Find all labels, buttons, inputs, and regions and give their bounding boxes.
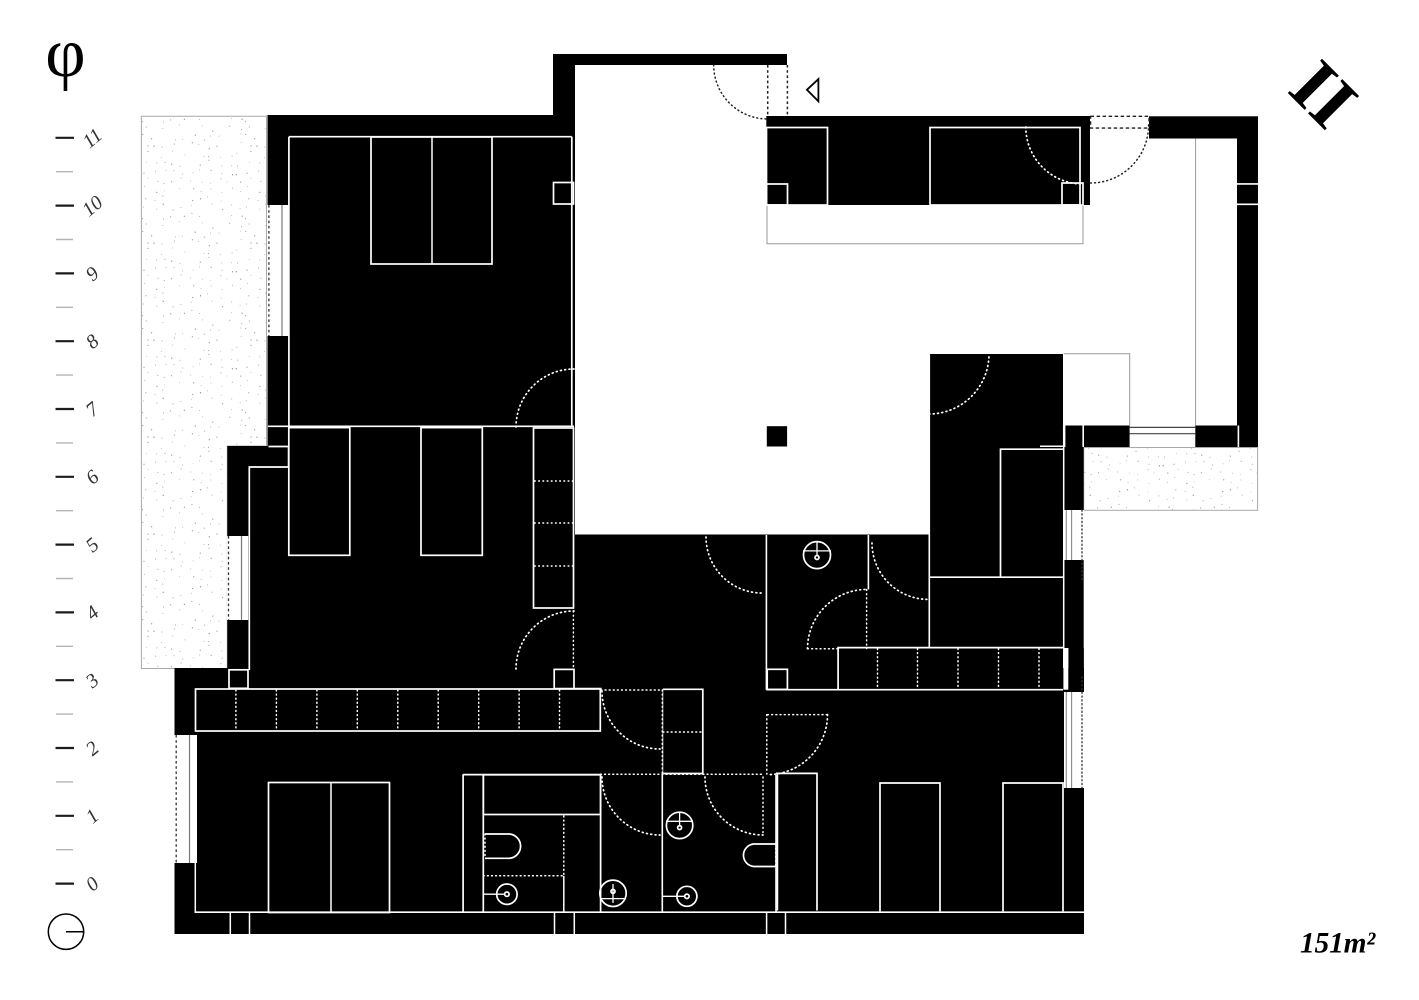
svg-text:151m²: 151m² [1300, 928, 1376, 960]
svg-text:φ: φ [45, 15, 85, 92]
